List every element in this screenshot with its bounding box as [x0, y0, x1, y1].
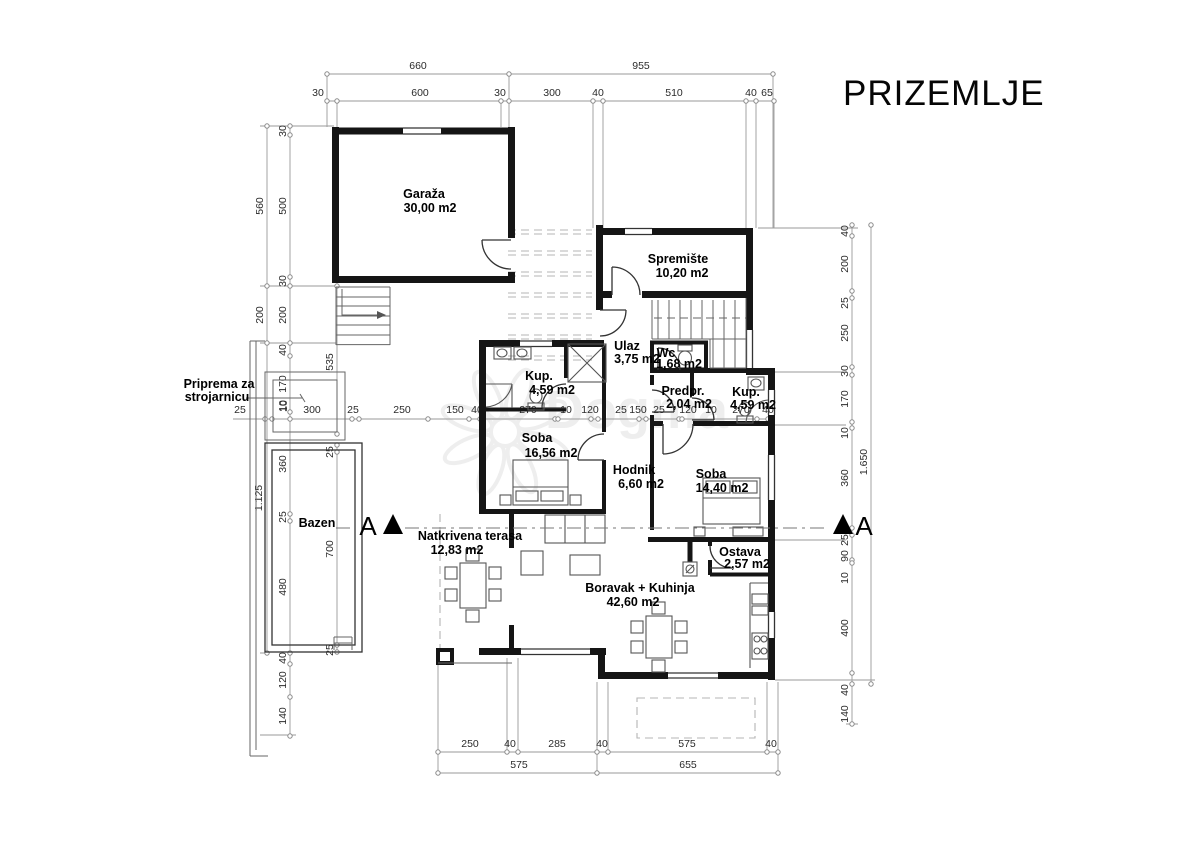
dim-label: 25	[839, 534, 851, 546]
dim-label: 40	[277, 344, 289, 356]
dim-label: 120	[581, 404, 599, 416]
dim-label: 40	[839, 225, 851, 237]
dim-label: 40	[277, 652, 289, 664]
room-area-kup2: 4,59 m2	[730, 398, 776, 412]
dim-label: 25	[324, 446, 336, 458]
dim-label: 25	[234, 404, 246, 416]
page-title: PRIZEMLJE	[843, 74, 1045, 113]
room-area-soba2: 14,40 m2	[696, 481, 749, 495]
dim-label: 660	[409, 60, 427, 72]
room-label-soba1: Soba	[522, 431, 554, 445]
room-label-bazen: Bazen	[299, 516, 336, 530]
dim-label: 510	[665, 87, 683, 99]
dim-label: 170	[277, 375, 289, 393]
section-label-left: A	[359, 511, 377, 541]
dim-label: 30	[277, 125, 289, 137]
dim-label: 40	[592, 87, 604, 99]
pool-outline	[265, 443, 362, 652]
dim-label: 285	[548, 738, 566, 750]
dim-label: 40	[839, 684, 851, 696]
dim-label: 500	[277, 197, 289, 215]
dim-label: 600	[411, 87, 429, 99]
dim-label: 150	[629, 404, 647, 416]
dim-label: 955	[632, 60, 650, 72]
dim-label: 30	[839, 365, 851, 377]
room-area-spremiste: 10,20 m2	[656, 266, 709, 280]
dining-table-living	[631, 602, 687, 672]
room-label-soba2: Soba	[696, 467, 728, 481]
room-label-kup2: Kup.	[732, 385, 760, 399]
dim-label: 560	[254, 197, 266, 215]
dim-label: 25	[839, 297, 851, 309]
room-label-spremiste: Spremište	[648, 252, 708, 266]
room-area-wc: 1,68 m2	[656, 357, 702, 371]
utility-symbol	[683, 562, 697, 576]
room-label-kup1: Kup.	[525, 369, 553, 383]
dim-label: 200	[839, 255, 851, 273]
interior-walls	[479, 341, 771, 575]
room-area-ulaz: 3,75 m2	[614, 352, 660, 366]
room-label-predpr: Predpr.	[661, 384, 704, 398]
room-label-hodnik: Hodnik	[613, 463, 655, 477]
section-arrow-left	[383, 514, 403, 534]
dim-label: 10	[839, 427, 851, 439]
room-label-garaza: Garaža	[403, 187, 446, 201]
dim-label: 25	[347, 404, 359, 416]
room-label-ulaz: Ulaz	[614, 339, 640, 353]
room-area-garaza: 30,00 m2	[404, 201, 457, 215]
room-area-soba1: 16,56 m2	[525, 446, 578, 460]
dim-label: 65	[761, 87, 773, 99]
dim-label: 250	[393, 404, 411, 416]
room-label-terasa: Natkrivena terasa	[418, 529, 523, 543]
room-area-boravak: 42,60 m2	[607, 595, 660, 609]
room-label-strojarnica-2: strojarnicu	[185, 390, 250, 404]
dim-label: 140	[839, 705, 851, 723]
dim-label: 200	[254, 306, 266, 324]
dim-label: 700	[324, 540, 336, 558]
dim-label: 360	[839, 469, 851, 487]
dim-label: 40	[745, 87, 757, 99]
pool-basin	[272, 450, 355, 645]
dim-label: 1.650	[858, 449, 870, 475]
floor-plan-page: Dogma 660 955 30 600 30 300 40 510 40 65…	[0, 0, 1200, 848]
dim-label: 655	[679, 759, 697, 771]
kitchen-counter	[750, 583, 768, 668]
dim-label: 300	[543, 87, 561, 99]
floor-plan-drawing: Dogma 660 955 30 600 30 300 40 510 40 65…	[0, 0, 1200, 848]
dim-label: 140	[277, 707, 289, 725]
dim-label: 120	[277, 671, 289, 689]
dim-label: 300	[303, 404, 321, 416]
dim-label: 480	[277, 578, 289, 596]
room-area-predpr: 2,04 m2	[666, 397, 712, 411]
dim-label: 150	[446, 404, 464, 416]
terrace-column	[438, 650, 452, 663]
dim-label: 250	[461, 738, 479, 750]
room-area-ostava: 2,57 m2	[724, 557, 770, 571]
room-label-strojarnica-1: Priprema za	[184, 377, 256, 391]
dim-label: 200	[277, 306, 289, 324]
dim-label: 1.125	[253, 485, 265, 511]
dim-label: 40	[765, 738, 777, 750]
dashed-outlines	[438, 514, 755, 738]
dim-label: 30	[312, 87, 324, 99]
room-area-kup1: 4,59 m2	[529, 383, 575, 397]
dim-label: 170	[839, 390, 851, 408]
dim-label: 25	[615, 404, 627, 416]
dim-label: 250	[839, 324, 851, 342]
sofa-group	[521, 515, 605, 575]
dim-label: 40	[596, 738, 608, 750]
dim-label: 30	[494, 87, 506, 99]
wardrobe-closet	[568, 344, 606, 382]
dim-label: 400	[839, 619, 851, 637]
section-arrow-right	[833, 514, 853, 534]
dim-label: 575	[510, 759, 528, 771]
dim-label: 90	[839, 550, 851, 562]
room-area-terasa: 12,83 m2	[431, 543, 484, 557]
dim-label: 575	[678, 738, 696, 750]
dim-label: 30	[277, 275, 289, 287]
dim-label: 360	[277, 455, 289, 473]
dim-label: 535	[324, 353, 336, 371]
dim-label: 10	[839, 572, 851, 584]
dim-label: 25	[277, 511, 289, 523]
room-area-hodnik: 6,60 m2	[618, 477, 664, 491]
dim-label: 40	[504, 738, 516, 750]
dim-label: 10	[278, 400, 290, 412]
dining-table-terrace	[445, 549, 501, 622]
room-label-boravak: Boravak + Kuhinja	[585, 581, 695, 595]
garage-exterior-stairs	[336, 287, 390, 345]
section-label-right: A	[855, 511, 873, 541]
dim-label: 25	[653, 404, 665, 416]
